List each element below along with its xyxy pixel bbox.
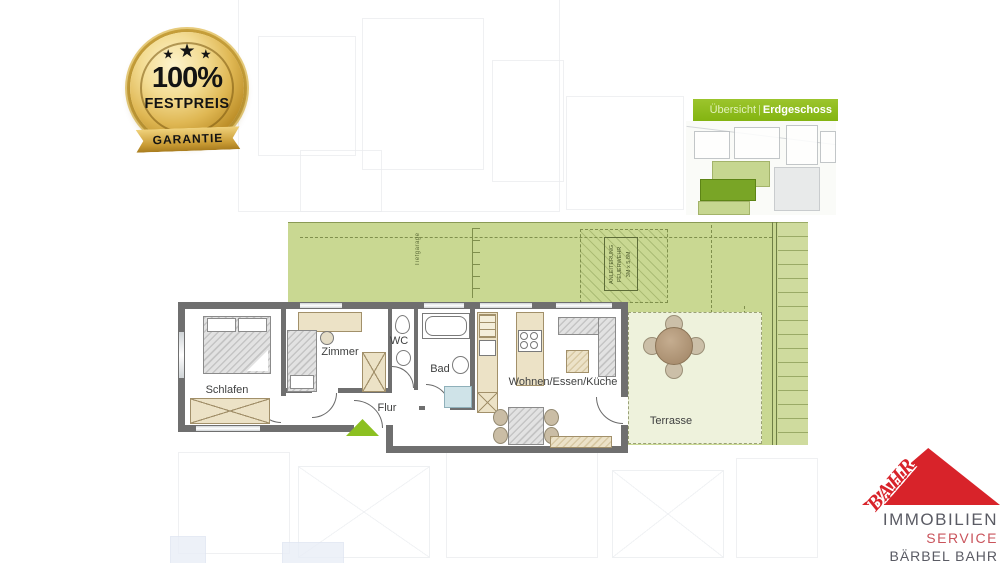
logo-service: SERVICE <box>820 530 998 546</box>
room-label-wc: WC <box>386 335 412 347</box>
site-plan-green-area <box>698 201 750 215</box>
ghost-plan-outline <box>736 458 818 558</box>
sideboard <box>550 436 612 448</box>
garden-hedge <box>778 222 808 445</box>
stove-burner <box>530 332 538 340</box>
fire-brigade-label-box: ANLEITERUNG FEUERWEHR 3M x 5,8M <box>604 237 638 291</box>
wall <box>414 309 418 390</box>
room-label-bad: Bad <box>424 363 456 375</box>
bed-pillow <box>290 375 314 389</box>
garden-path <box>772 222 773 445</box>
fire-label-line2: FEUERWEHR <box>618 246 624 281</box>
kitchen-sink <box>479 340 496 356</box>
room-label-flur: Flur <box>370 402 404 414</box>
overview-tab-uebersicht: Übersicht <box>710 104 756 116</box>
terrace-table <box>655 327 693 365</box>
sink <box>396 350 411 366</box>
garden-path <box>776 222 777 445</box>
ghost-plan-outline <box>362 18 484 170</box>
wall <box>281 309 286 396</box>
wall <box>621 425 628 453</box>
logo-baerbel-bahr: BÄRBEL BAHR <box>820 548 998 563</box>
seal-festpreis: FESTPREIS <box>130 96 244 112</box>
wall <box>419 406 425 410</box>
overview-separator: | <box>756 104 763 116</box>
dining-chair <box>544 409 559 426</box>
bed-pillow <box>238 318 267 332</box>
bathtub-inner <box>425 316 467 336</box>
room-label-terrasse: Terrasse <box>636 415 706 427</box>
fire-label-line1: ANLEITERUNG <box>610 244 616 283</box>
site-plan-building <box>694 131 730 159</box>
site-plan-building <box>786 125 818 165</box>
room-label-schlafen: Schlafen <box>192 384 262 396</box>
room-label-wohnen: Wohnen/Essen/Küche <box>498 376 628 388</box>
ghost-plan-outline <box>446 452 598 558</box>
site-plan-overview <box>686 121 836 215</box>
window <box>179 332 184 378</box>
sofa <box>598 317 616 377</box>
site-plan-building <box>734 127 780 159</box>
site-plan-building <box>820 131 836 163</box>
stove-burner <box>520 332 528 340</box>
ghost-plan-tint <box>282 542 344 563</box>
garden-boundary-dashed <box>300 237 772 238</box>
site-plan-building <box>774 167 820 211</box>
wardrobe <box>190 398 270 424</box>
logo-immobilien: IMMOBILIEN <box>820 510 998 530</box>
desk <box>298 312 362 332</box>
wardrobe <box>362 352 386 392</box>
dining-table <box>508 407 544 445</box>
ghost-plan-outline <box>492 60 564 182</box>
room-label-zimmer: Zimmer <box>310 346 370 358</box>
garden-area <box>288 222 780 306</box>
window <box>196 426 260 431</box>
seal-percent: 100% <box>130 62 244 95</box>
window <box>424 303 464 308</box>
stove-burner <box>520 341 528 349</box>
seal-garantie-ribbon: GARANTIE <box>136 126 241 153</box>
site-plan-highlighted-unit <box>700 179 756 201</box>
coffee-table <box>566 350 589 373</box>
fire-label-line3: 3M x 5,8M <box>626 251 632 277</box>
shower <box>444 386 472 408</box>
window <box>480 303 532 308</box>
window <box>300 303 342 308</box>
dining-chair <box>493 409 508 426</box>
ghost-plan-outline <box>566 96 684 210</box>
garden-fence-ticks <box>472 228 480 298</box>
stove-burner <box>530 341 538 349</box>
bed-pillow <box>207 318 236 332</box>
ghost-plan-outline <box>258 36 356 156</box>
dining-chair <box>493 427 508 444</box>
overview-tab-erdgeschoss: Erdgeschoss <box>763 104 832 116</box>
window <box>556 303 612 308</box>
ghost-plan-outline <box>612 470 724 558</box>
kitchen-shelves <box>479 314 496 338</box>
toilet <box>395 315 410 334</box>
ghost-plan-tint <box>170 536 206 563</box>
floorplan-brochure: ★ ★ ★ 100% FESTPREIS GARANTIE Übersicht|… <box>0 0 1000 563</box>
garage-annotation: Tiefgarage <box>415 226 421 266</box>
ghost-plan-outline <box>300 150 382 212</box>
desk-chair <box>320 331 334 345</box>
overview-banner: Übersicht|Erdgeschoss <box>693 99 838 121</box>
